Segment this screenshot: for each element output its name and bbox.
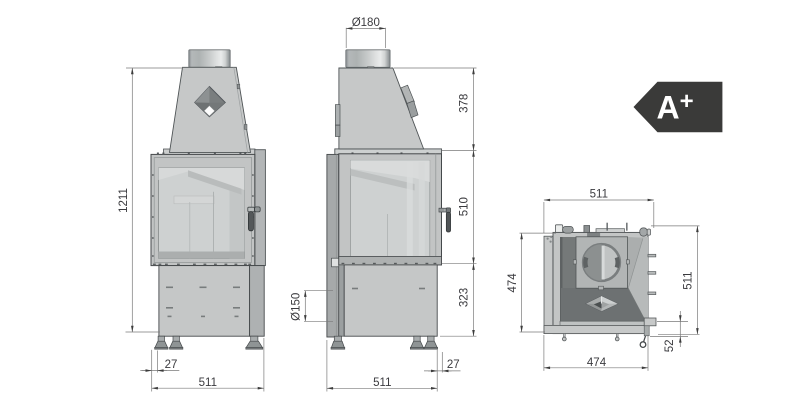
svg-text:511: 511	[373, 377, 391, 389]
svg-text:511: 511	[199, 377, 217, 389]
svg-text:510: 510	[459, 197, 471, 216]
svg-text:511: 511	[682, 271, 694, 289]
svg-text:474: 474	[587, 357, 607, 369]
svg-text:Ø150: Ø150	[291, 293, 303, 321]
svg-text:474: 474	[507, 273, 519, 293]
svg-text:378: 378	[459, 94, 471, 113]
svg-text:1211: 1211	[118, 188, 130, 213]
svg-text:27: 27	[447, 359, 460, 371]
svg-text:52: 52	[664, 340, 676, 353]
svg-text:27: 27	[165, 359, 178, 371]
svg-text:511: 511	[590, 188, 608, 200]
svg-text:323: 323	[459, 288, 471, 307]
svg-text:Ø180: Ø180	[352, 17, 380, 29]
